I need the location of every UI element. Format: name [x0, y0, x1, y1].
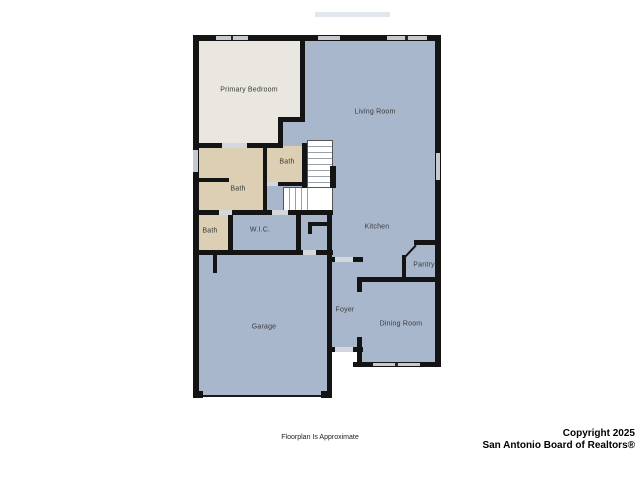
floorplan-image: Primary Bedroom Living Room Bath Bath Ba…: [0, 0, 640, 480]
wall-bedroom-right: [300, 35, 305, 122]
door-opening-bath-lower: [219, 210, 232, 215]
door-opening-bedroom: [222, 143, 247, 148]
room-label-foyer: Foyer: [336, 307, 355, 314]
window-top-mid: [318, 36, 340, 40]
primary-bedroom-fill-2: [198, 118, 280, 145]
staircase-treads: [284, 188, 311, 210]
door-opening-foyer-top: [335, 257, 353, 262]
disclaimer-text: Floorplan Is Approximate: [281, 434, 358, 441]
room-label-pantry: Pantry: [413, 262, 434, 269]
door-opening-bath-upper: [267, 182, 278, 186]
wall-bath-stub: [199, 178, 229, 182]
room-label-garage: Garage: [252, 324, 277, 331]
wall-pantry-top: [414, 240, 436, 245]
copyright-line-1: Copyright 2025: [482, 428, 635, 440]
copyright-text: Copyright 2025 San Antonio Board of Real…: [482, 428, 635, 452]
window-mullion: [405, 36, 408, 40]
wall-garage-stub: [213, 255, 217, 273]
wall-pantry-left: [402, 255, 406, 282]
room-label-wic: W.I.C.: [250, 227, 270, 234]
window-mullion: [395, 363, 398, 366]
primary-bedroom-fill: [198, 40, 302, 120]
wall-kitchen-dining: [357, 277, 436, 282]
wall-right: [435, 35, 441, 367]
window-left-bath: [193, 150, 198, 172]
room-label-dining-room: Dining Room: [380, 321, 423, 328]
room-label-bath-lower: Bath: [202, 228, 217, 235]
room-label-living-room: Living Room: [354, 109, 395, 116]
staircase-lower-run: [283, 187, 333, 211]
door-opening-kitchen: [303, 250, 316, 255]
window-mullion: [231, 36, 233, 40]
exterior-notch-dining: [358, 367, 438, 398]
window-right-living: [436, 153, 440, 180]
wall-garage-right: [327, 215, 332, 398]
room-label-primary-bedroom: Primary Bedroom: [220, 87, 277, 94]
room-label-bath-upper: Bath: [279, 159, 294, 166]
wall-garage-post-left: [193, 391, 203, 398]
room-label-bath-main: Bath: [230, 186, 245, 193]
door-opening-wic: [272, 210, 288, 215]
copyright-line-2: San Antonio Board of Realtors®: [482, 440, 635, 452]
wall-left: [193, 35, 199, 398]
room-label-kitchen: Kitchen: [365, 224, 390, 231]
exterior-notch-foyer: [332, 352, 358, 398]
patio-faint-line: [315, 12, 390, 17]
front-door-opening: [335, 347, 353, 352]
wall-stairs-right: [330, 166, 336, 188]
wall-understair-tick: [308, 222, 312, 234]
wall-hall-bottom: [193, 210, 333, 215]
wall-foyer-right-upper: [357, 277, 362, 292]
wall-wic-left: [228, 212, 233, 255]
garage-door-line: [203, 395, 321, 397]
wall-wic-right: [296, 215, 301, 255]
wall-bath-divider: [263, 143, 267, 214]
